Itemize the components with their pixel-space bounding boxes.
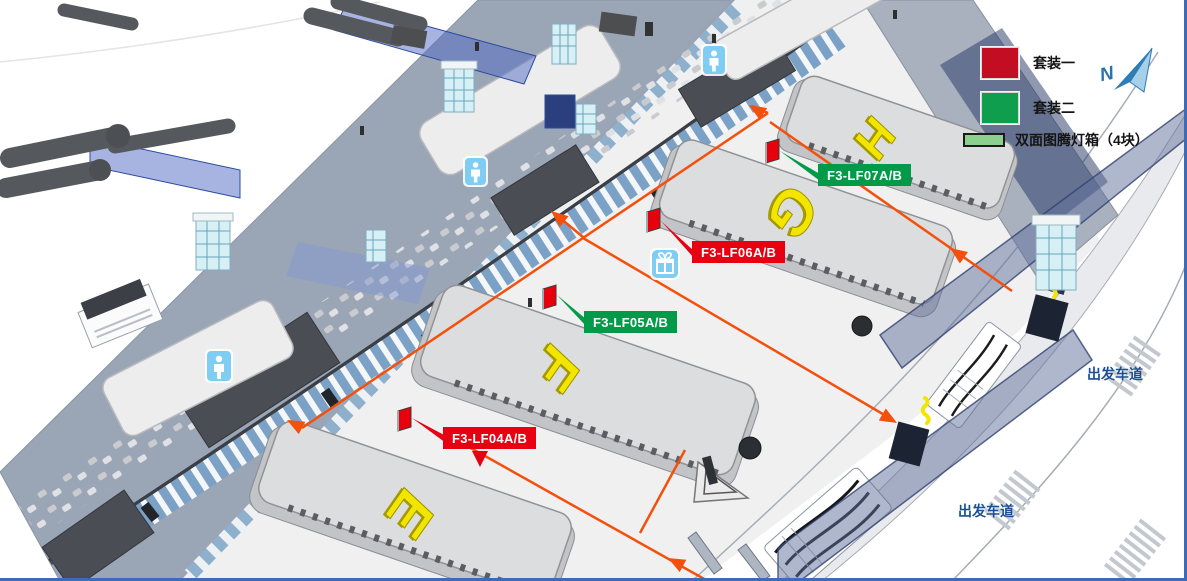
restroom-icon bbox=[463, 156, 488, 187]
legend-label-set2: 套装二 bbox=[1033, 98, 1075, 118]
gift-shop-icon bbox=[650, 248, 680, 280]
legend-label-totem: 双面图腾灯箱（4块） bbox=[1015, 130, 1149, 150]
legend-swatch-totem-bar bbox=[963, 133, 1005, 147]
restroom-icon bbox=[701, 44, 727, 76]
glass-tower bbox=[576, 104, 596, 134]
departure-lane-label-upper: 出发车道 bbox=[1087, 364, 1143, 384]
totem-marker-lf06 bbox=[647, 208, 660, 232]
totem-label-lf05: F3-LF05A/B bbox=[584, 311, 677, 333]
legend-row-set2: 套装二 bbox=[981, 92, 1075, 124]
totem-label-lf04: F3-LF04A/B bbox=[443, 427, 536, 449]
totem-label-lf06: F3-LF06A/B bbox=[692, 241, 785, 263]
glass-tower bbox=[1032, 215, 1080, 290]
glass-tower bbox=[441, 61, 477, 112]
totem-marker-lf07 bbox=[766, 139, 779, 163]
departure-lane-label-lower: 出发车道 bbox=[958, 501, 1014, 521]
legend-label-set1: 套装一 bbox=[1033, 53, 1075, 73]
restroom-icon bbox=[205, 349, 233, 383]
legend-row-set1: 套装一 bbox=[981, 47, 1075, 79]
totem-label-lf07: F3-LF07A/B bbox=[818, 164, 911, 186]
legend-swatch-set1 bbox=[981, 47, 1019, 79]
glass-tower bbox=[366, 230, 386, 262]
glass-tower bbox=[193, 213, 233, 270]
totem-marker-lf04 bbox=[398, 407, 411, 431]
terminal-map-canvas: E E F F G G H H bbox=[0, 0, 1187, 581]
totem-marker-lf05 bbox=[543, 285, 556, 309]
legend-swatch-set2 bbox=[981, 92, 1019, 124]
glass-tower bbox=[552, 24, 576, 64]
terminal-3d-scene: E E F F G G H H bbox=[0, 0, 1187, 581]
legend-row-totem: 双面图腾灯箱（4块） bbox=[963, 130, 1149, 150]
